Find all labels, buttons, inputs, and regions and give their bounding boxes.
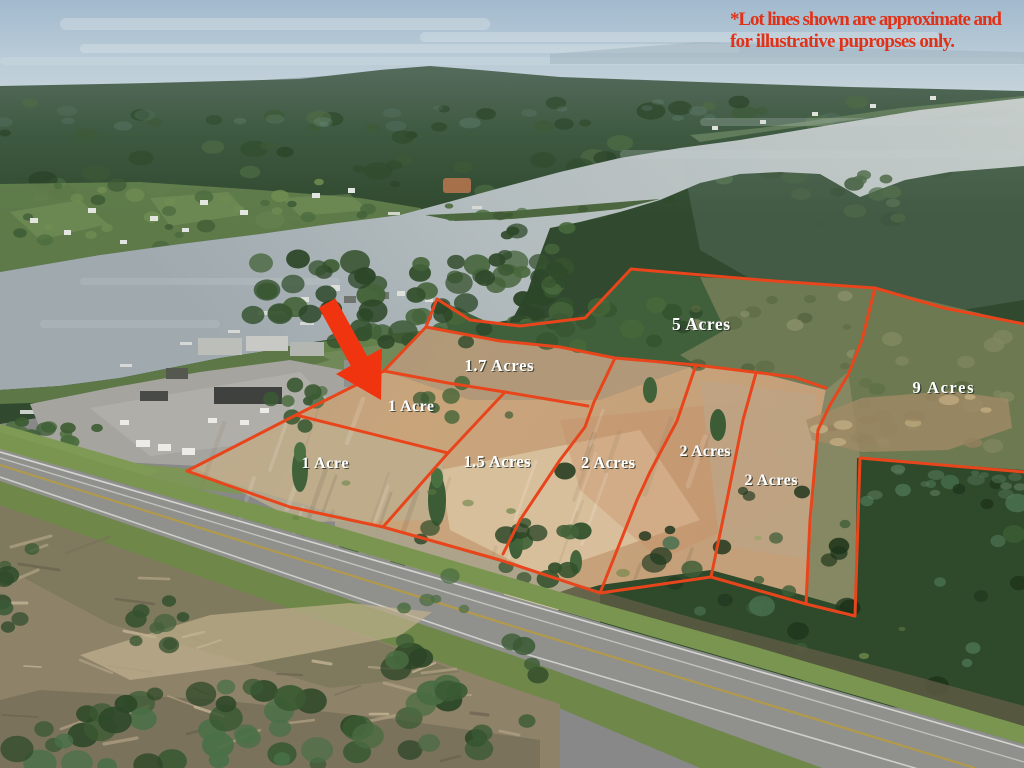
svg-text:for illustrative pupropses onl: for illustrative pupropses only.	[730, 31, 955, 52]
svg-text:9 Acres: 9 Acres	[913, 378, 975, 397]
svg-text:5 Acres: 5 Acres	[672, 314, 730, 334]
svg-text:2 Acres: 2 Acres	[581, 453, 636, 472]
svg-text:*Lot lines shown are approxima: *Lot lines shown are approximate and	[730, 9, 1002, 30]
svg-text:1.7 Acres: 1.7 Acres	[465, 356, 535, 375]
svg-text:2 Acres: 2 Acres	[680, 443, 731, 460]
svg-text:1.5 Acres: 1.5 Acres	[464, 452, 532, 471]
svg-text:2 Acres: 2 Acres	[745, 472, 798, 489]
svg-text:1 Acre: 1 Acre	[302, 455, 349, 472]
svg-text:1 Acre: 1 Acre	[388, 398, 434, 415]
